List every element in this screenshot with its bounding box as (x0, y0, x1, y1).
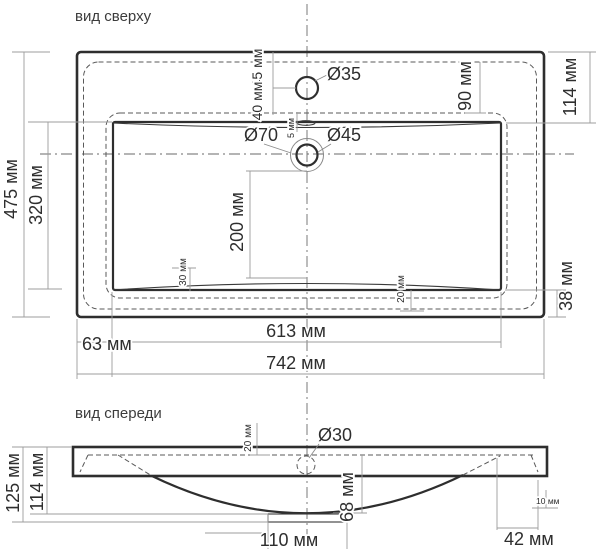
dim-rim-drop: 20 мм (243, 424, 254, 452)
top-view-title: вид сверху (75, 8, 152, 25)
dim-height-bowl: 114 мм (27, 453, 47, 511)
dim-right-offset: 42 мм (504, 529, 554, 549)
dim-width-overall: 742 мм (266, 353, 326, 373)
dim-faucet-inner: Ø45 (327, 125, 361, 145)
front-view-title: вид спереди (75, 405, 162, 422)
left-wall-hidden (80, 455, 88, 472)
basin-rim-hidden (106, 113, 507, 298)
drain-hole-front (297, 456, 315, 474)
deck-slab (73, 447, 547, 476)
dim-edge-thickness: 10 мм (536, 496, 560, 506)
dim-overflow-to-rim: 40 мм (249, 82, 265, 121)
dim-drain-hole: Ø30 (318, 425, 352, 445)
bowl-curve (152, 475, 463, 513)
right-wall-hidden (531, 455, 538, 472)
dim-left-offset: 63 мм (82, 334, 132, 354)
dim-bowl-depth: 68 мм (337, 472, 357, 522)
bowl-right-hidden (463, 456, 500, 475)
top-view: вид сверху (1, 8, 596, 379)
technical-drawing-sink: вид сверху (0, 0, 600, 550)
drawing-svg: вид сверху (0, 0, 600, 550)
dim-width-basin: 613 мм (266, 321, 326, 341)
dim-front-inset: 38 мм (556, 261, 576, 311)
dim-overflow-hole: Ø35 (327, 64, 361, 84)
dim-back-inset: 90 мм (455, 61, 475, 111)
bowl-left-hidden (118, 455, 152, 476)
dim-depth-basin: 320 мм (26, 165, 46, 225)
dim-faucet-outer: Ø70 (244, 125, 278, 145)
dim-faucet-to-front: 200 мм (227, 192, 247, 252)
dim-drain-width: 110 мм (260, 530, 318, 550)
dim-depth-overall: 475 мм (1, 159, 21, 219)
dim-back-to-overflow: 45 мм (249, 49, 265, 88)
dim-height-overall: 125 мм (3, 453, 23, 513)
centerlines (40, 4, 574, 543)
dim-rim-gap: 5 мм (286, 118, 296, 138)
dim-left-slope: 30 мм (178, 258, 189, 286)
front-view: вид спереди (3, 405, 560, 550)
drain-boss (268, 514, 347, 522)
dim-right-slope: 20 мм (396, 275, 407, 303)
dim-back-inset-right: 114 мм (560, 58, 580, 116)
